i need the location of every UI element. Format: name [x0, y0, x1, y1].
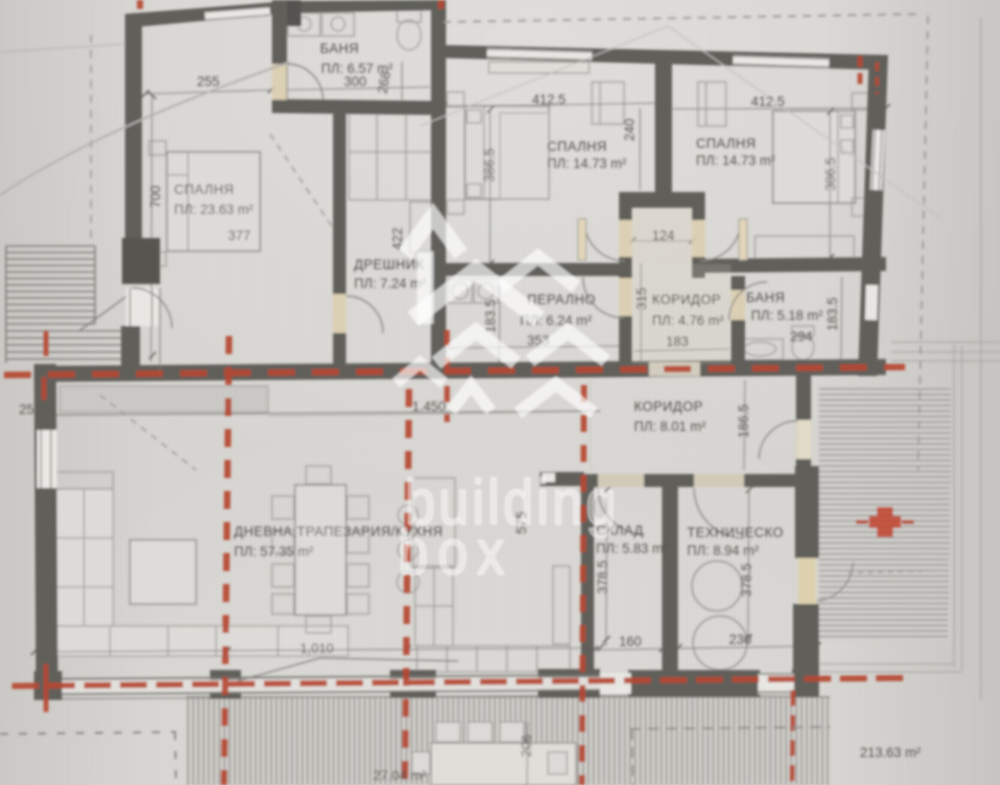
- svg-text:box: box: [398, 518, 514, 588]
